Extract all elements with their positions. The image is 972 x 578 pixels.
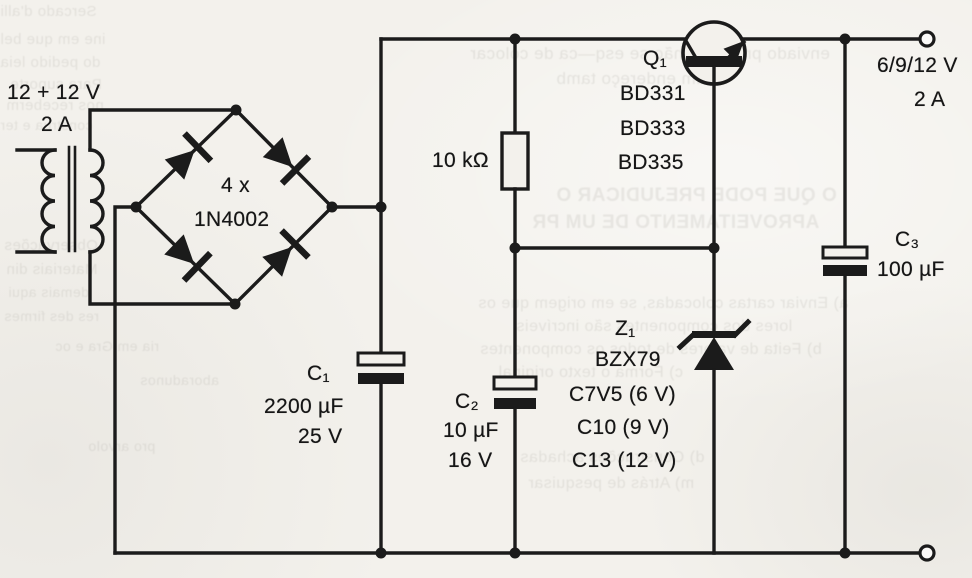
c1-ref-label: C₁ <box>307 363 330 385</box>
c1-voltage-label: 25 V <box>298 426 342 448</box>
zener-z1-symbol <box>680 248 748 553</box>
transistor-option-label: BD333 <box>620 118 686 140</box>
transformer-symbol <box>17 147 103 252</box>
transformer-core <box>69 147 75 251</box>
capacitor-c2-symbol <box>494 377 536 553</box>
output-voltage-label: 6/9/12 V <box>877 55 958 77</box>
resistor-value-label: 10 kΩ <box>432 150 489 172</box>
capacitor-c1-symbol <box>358 353 404 553</box>
transistor-option-label: BD335 <box>618 152 684 174</box>
transformer-current-label: 2 A <box>41 114 72 136</box>
resistor-10k-symbol <box>502 39 528 377</box>
c1-value-label: 2200 µF <box>264 396 344 418</box>
transistor-ref-label: Q₁ <box>643 48 667 70</box>
circuit-drawing <box>0 0 972 578</box>
zener-ref-label: Z₁ <box>615 318 636 340</box>
wire-ground-left <box>115 207 136 553</box>
zener-option-label: C7V5 (6 V) <box>569 384 676 406</box>
c2-ref-label: C₂ <box>455 391 479 413</box>
bridge-part-label: 1N4002 <box>194 209 269 231</box>
output-terminal-positive <box>920 32 934 46</box>
zener-family-label: BZX79 <box>595 349 661 371</box>
transformer-secondary-coil <box>90 150 103 252</box>
c2-voltage-label: 16 V <box>448 450 492 472</box>
transformer-primary-coil <box>42 150 55 252</box>
transistor-q1-symbol <box>683 22 745 248</box>
junction-dots <box>131 34 851 559</box>
scanned-schematic-page: Sercado d'alli ine em que bel do pedido … <box>0 0 972 578</box>
wire-secondary-bottom <box>90 252 235 304</box>
c3-ref-label: C₃ <box>895 229 919 251</box>
c2-value-label: 10 µF <box>443 420 499 442</box>
c3-value-label: 100 µF <box>877 259 945 281</box>
zener-option-label: C13 (12 V) <box>572 450 677 472</box>
zener-option-label: C10 (9 V) <box>577 417 670 439</box>
bridge-qty-label: 4 x <box>221 175 250 197</box>
output-current-label: 2 A <box>914 89 945 111</box>
bridge-rectifier <box>136 110 332 304</box>
transformer-rating-label: 12 + 12 V <box>7 82 100 104</box>
transistor-option-label: BD331 <box>620 83 686 105</box>
output-terminal-negative <box>920 546 934 560</box>
capacitor-c3-symbol <box>823 39 867 553</box>
